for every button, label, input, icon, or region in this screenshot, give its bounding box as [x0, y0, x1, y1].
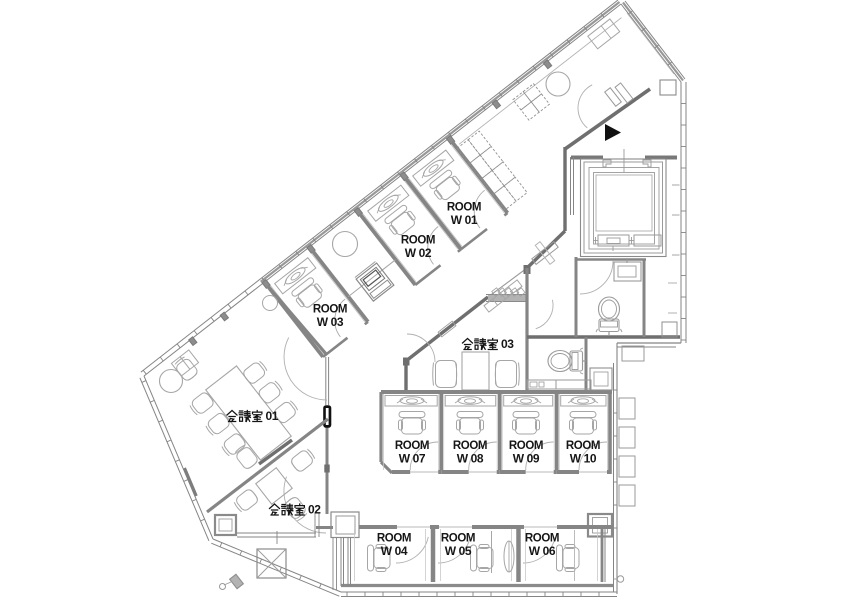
svg-text:W 08: W 08	[457, 452, 484, 466]
svg-text:ROOM: ROOM	[377, 533, 411, 545]
svg-text:W 06: W 06	[529, 544, 556, 558]
svg-text:W 03: W 03	[317, 315, 344, 329]
svg-text:ROOM: ROOM	[313, 304, 347, 316]
svg-text:W 09: W 09	[513, 452, 540, 466]
svg-text:03: 03	[501, 337, 514, 351]
svg-text:W 05: W 05	[445, 544, 472, 558]
svg-text:W 01: W 01	[451, 213, 478, 227]
svg-text:ROOM: ROOM	[447, 202, 481, 214]
svg-text:01: 01	[266, 409, 279, 423]
svg-text:ROOM: ROOM	[441, 533, 475, 545]
svg-text:W 02: W 02	[405, 246, 432, 260]
svg-text:W 07: W 07	[399, 452, 426, 466]
svg-text:ROOM: ROOM	[395, 440, 429, 452]
svg-text:02: 02	[308, 503, 321, 517]
svg-text:ROOM: ROOM	[509, 440, 543, 452]
svg-text:ROOM: ROOM	[566, 440, 600, 452]
svg-text:W 04: W 04	[381, 544, 408, 558]
svg-text:ROOM: ROOM	[453, 440, 487, 452]
svg-text:ROOM: ROOM	[401, 235, 435, 247]
svg-text:W 10: W 10	[570, 452, 597, 466]
svg-text:ROOM: ROOM	[525, 533, 559, 545]
